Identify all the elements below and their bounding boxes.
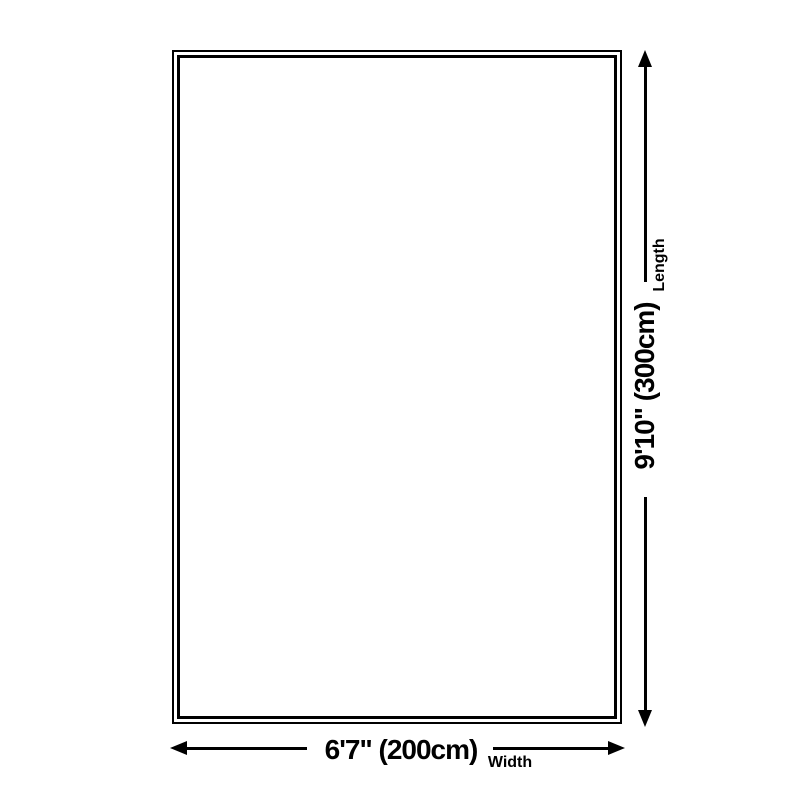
length-value: 9'10" (300cm) — [631, 302, 659, 469]
length-arrow-lower-line — [644, 497, 647, 713]
width-label: Width — [488, 755, 532, 771]
width-arrow-right-line — [493, 747, 613, 750]
arrow-down-icon — [638, 710, 652, 727]
width-arrow-left-line — [184, 747, 307, 750]
rug-outline — [172, 50, 622, 724]
length-label: Length — [652, 238, 668, 291]
length-arrow-upper-line — [644, 64, 647, 282]
rug-outline-inner-border — [177, 55, 617, 719]
width-value: 6'7" (200cm) — [325, 736, 478, 764]
arrow-right-icon — [608, 741, 625, 755]
rug-size-diagram: Length 9'10" (300cm) 6'7" (200cm) Width — [0, 0, 800, 800]
